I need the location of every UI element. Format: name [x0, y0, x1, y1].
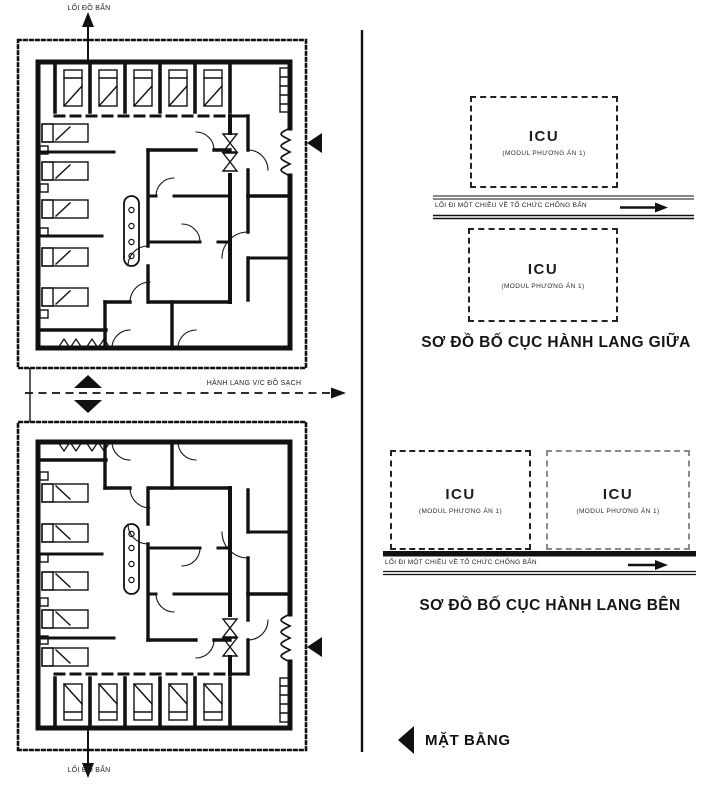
flow-label-side-corridor: LỐI ĐI MỘT CHIỀU VỀ TỔ CHỨC CHỐNG BẨN	[385, 559, 563, 566]
icu-module-name: ICU	[603, 486, 633, 503]
icu-module-box-mid-2: ICU (MODUL PHƯƠNG ÁN 1)	[468, 228, 618, 322]
icu-module-name: ICU	[445, 486, 475, 503]
icu-module-box-side-1: ICU (MODUL PHƯƠNG ÁN 1)	[390, 450, 531, 550]
diagram-title-middle-corridor: SƠ ĐỒ BỐ CỤC HÀNH LANG GIỮA	[410, 334, 702, 352]
up-arrow-icon	[74, 375, 102, 388]
caption-marker-icon	[398, 726, 414, 754]
icu-module-subtitle: (MODUL PHƯƠNG ÁN 1)	[501, 283, 584, 290]
icu-module-subtitle: (MODUL PHƯƠNG ÁN 1)	[419, 508, 502, 515]
diagram-title-side-corridor: SƠ ĐỒ BỐ CỤC HÀNH LANG BÊN	[404, 597, 696, 615]
dirty-route-label-top: LỐI ĐỒ BẨN	[48, 5, 130, 12]
clean-corridor-label: HÀNH LANG V/C ĐỒ SẠCH	[198, 380, 310, 387]
middle-corridor-line	[25, 368, 346, 422]
floor-plan-bottom	[18, 422, 322, 778]
icu-module-name: ICU	[529, 128, 559, 145]
icu-module-subtitle: (MODUL PHƯƠNG ÁN 1)	[502, 150, 585, 157]
flow-label-middle-corridor: LỐI ĐI MỘT CHIỀU VỀ TỔ CHỨC CHỐNG BẨN	[435, 202, 613, 209]
plan-caption: MẶT BẰNG	[425, 732, 511, 749]
icu-module-subtitle: (MODUL PHƯƠNG ÁN 1)	[576, 508, 659, 515]
icu-module-name: ICU	[528, 261, 558, 278]
architectural-drawing-sheet: LỐI ĐỒ BẨN LỐI ĐỒ BẨN HÀNH LANG V/C ĐỒ S…	[0, 0, 704, 786]
dirty-route-label-bottom: LỐI ĐỒ BẨN	[44, 767, 134, 774]
floor-plan-top	[18, 12, 322, 368]
icu-module-box-mid-1: ICU (MODUL PHƯƠNG ÁN 1)	[470, 96, 618, 188]
icu-module-box-side-2: ICU (MODUL PHƯƠNG ÁN 1)	[546, 450, 690, 550]
down-arrow-icon	[74, 400, 102, 413]
